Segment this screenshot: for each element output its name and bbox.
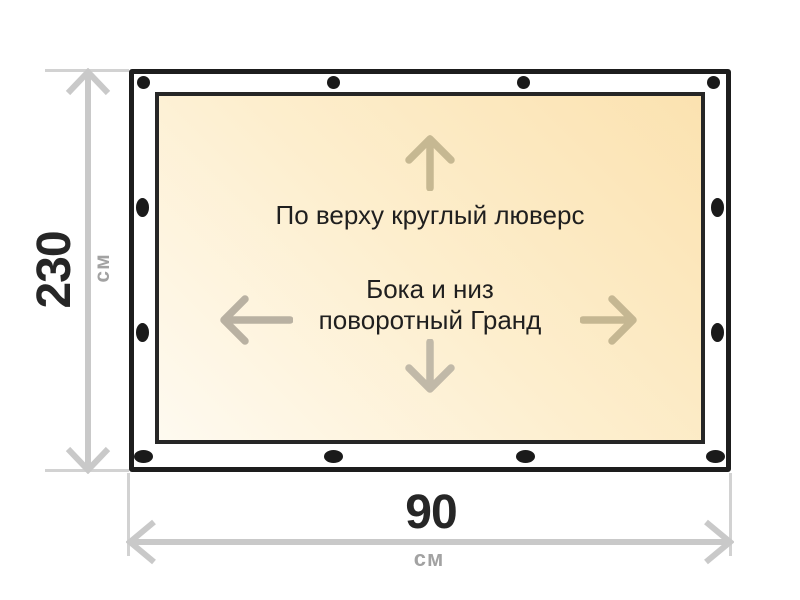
grommet-bottom-1 xyxy=(134,450,153,463)
width-value-label: 90 xyxy=(331,487,531,539)
grommet-bottom-3 xyxy=(516,450,535,463)
grommet-bottom-2 xyxy=(324,450,343,463)
grommet-top-4 xyxy=(707,76,720,89)
arrow-up-shape xyxy=(409,139,451,188)
grommet-right-1 xyxy=(711,198,724,217)
grommet-right-2 xyxy=(711,323,724,342)
arrow-down-shape xyxy=(409,342,451,389)
note-sides-line1: Бока и низ xyxy=(155,274,705,305)
grommet-left-2 xyxy=(136,323,149,342)
arrow-up-icon xyxy=(404,131,456,191)
note-sides-line2: поворотный Гранд xyxy=(155,305,705,336)
height-unit-label: см xyxy=(78,208,128,328)
banner-dimension-diagram: 230 см По верху круглый люверс Бока и ни… xyxy=(0,0,800,600)
grommet-top-3 xyxy=(517,76,530,89)
width-unit-label: см xyxy=(329,547,529,571)
grommet-top-2 xyxy=(327,76,340,89)
note-top-grommet: По верху круглый люверс xyxy=(155,200,705,231)
grommet-left-1 xyxy=(136,198,149,217)
arrow-down-icon xyxy=(404,339,456,397)
grommet-bottom-4 xyxy=(706,450,725,463)
grommet-top-1 xyxy=(137,76,150,89)
height-value-label: 230 xyxy=(30,200,80,340)
